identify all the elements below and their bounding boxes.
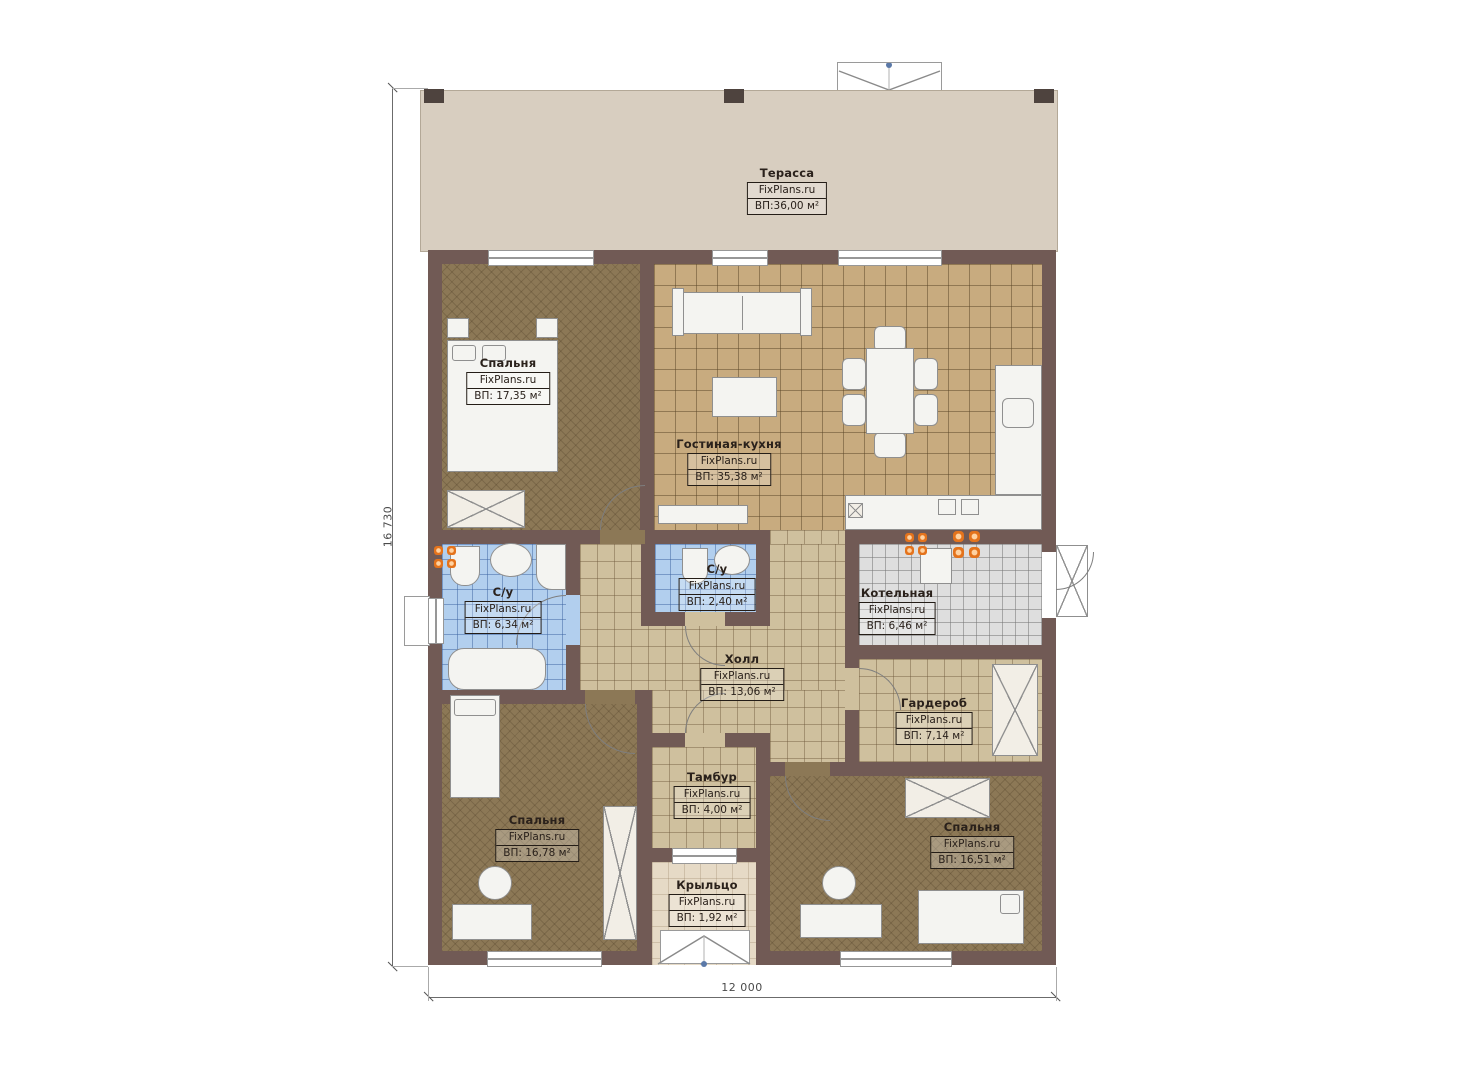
sink-cross-icon (848, 503, 863, 518)
room-label-tambur: Тамбур FixPlans.ru ВП: 4,00 м² (674, 770, 751, 819)
room-info-box: FixPlans.ru ВП: 6,34 м² (465, 601, 542, 634)
dining-chair (842, 394, 866, 426)
room-area: ВП: 13,06 м² (701, 685, 783, 700)
terrace-door-window (838, 250, 942, 266)
dining-table (866, 348, 914, 434)
nightstand (447, 318, 469, 338)
wardrobe-cabinet (992, 664, 1038, 756)
bedroom2-door-opening (585, 690, 635, 704)
bathroom1-window-sill (404, 596, 430, 646)
terrace-post-right (1034, 89, 1054, 103)
room-info-box: FixPlans.ru ВП: 4,00 м² (674, 786, 751, 819)
room-info-box: FixPlans.ru ВП: 1,92 м² (669, 894, 746, 927)
sofa-armrest (800, 288, 812, 336)
cooktop-icon (938, 499, 956, 515)
room-watermark: FixPlans.ru (897, 713, 972, 729)
room-info-box: FixPlans.ru ВП:36,00 м² (747, 182, 827, 215)
bedroom3-door-opening (785, 762, 830, 776)
terrace-area (420, 90, 1058, 252)
room-name: Гардероб (896, 696, 973, 710)
burner-dot (905, 546, 914, 555)
room-label-bathroom2: С/у FixPlans.ru ВП: 2,40 м² (679, 562, 756, 611)
room-label-boiler: Котельная FixPlans.ru ВП: 6,46 м² (859, 586, 936, 635)
burner-dot (918, 546, 927, 555)
terrace-post-left (424, 89, 444, 103)
room-watermark: FixPlans.ru (701, 669, 783, 685)
height-dimension-label: 16 730 (382, 494, 395, 560)
bathroom1-window (428, 598, 444, 644)
room-area: ВП: 1,92 м² (670, 911, 745, 926)
room-label-porch: Крыльцо FixPlans.ru ВП: 1,92 м² (669, 878, 746, 927)
room-info-box: FixPlans.ru ВП: 16,51 м² (930, 836, 1014, 869)
tv-stand (658, 505, 748, 524)
room-watermark: FixPlans.ru (860, 603, 935, 619)
room-area: ВП: 2,40 м² (680, 595, 755, 610)
exterior-door-swing (1056, 552, 1094, 590)
porch-steps (652, 928, 756, 968)
room-name: Спальня (466, 356, 550, 370)
width-dimension-line (428, 997, 1056, 998)
dining-chair (914, 358, 938, 390)
bathroom2-door-opening (685, 612, 725, 626)
dining-chair (842, 358, 866, 390)
tambur-door-opening (685, 733, 725, 747)
room-watermark: FixPlans.ru (496, 830, 578, 846)
bedroom1-wardrobe-cabinet (447, 490, 525, 528)
room-watermark: FixPlans.ru (748, 183, 826, 199)
room-label-bedroom3: Спальня FixPlans.ru ВП: 16,51 м² (930, 820, 1014, 869)
pillow (1000, 894, 1020, 914)
room-area: ВП: 17,35 м² (467, 389, 549, 404)
kitchen-sink (1002, 398, 1034, 428)
floor-plan-canvas: Терасса FixPlans.ru ВП:36,00 м² Спальня … (0, 0, 1474, 1080)
radiator-dot (434, 546, 443, 555)
bedroom3-window (840, 951, 952, 967)
extension-line-left (428, 967, 429, 1001)
chair (822, 866, 856, 900)
room-name: С/у (679, 562, 756, 576)
room-area: ВП:36,00 м² (748, 199, 826, 214)
bathroom1-door-opening (566, 595, 580, 645)
room-area: ВП: 7,14 м² (897, 729, 972, 744)
burner-dot (953, 531, 964, 542)
burner-dot (969, 531, 980, 542)
boiler-exterior-door-opening (1042, 552, 1056, 618)
radiator-dot (447, 559, 456, 568)
oven-icon (961, 499, 979, 515)
room-info-box: FixPlans.ru ВП: 35,38 м² (687, 453, 771, 486)
entry-door (672, 848, 737, 864)
room-watermark: FixPlans.ru (467, 373, 549, 389)
wardrobe-door-opening (845, 668, 859, 710)
bedroom3-wardrobe-cabinet (905, 778, 990, 818)
radiator-dot (434, 559, 443, 568)
room-name: С/у (465, 585, 542, 599)
hall-living-opening (770, 530, 845, 544)
room-watermark: FixPlans.ru (931, 837, 1013, 853)
chair (478, 866, 512, 900)
room-area: ВП: 16,78 м² (496, 846, 578, 861)
extension-line-bottom (392, 966, 428, 967)
room-label-living-kitchen: Гостиная-кухня FixPlans.ru ВП: 35,38 м² (676, 437, 781, 486)
dining-chair (874, 432, 906, 458)
burner-dot (953, 547, 964, 558)
terrace-post-middle (724, 89, 744, 103)
width-dimension-label: 12 000 (709, 981, 775, 994)
porch-steps-icon (652, 928, 756, 968)
room-watermark: FixPlans.ru (466, 602, 541, 618)
bedroom1-window (488, 250, 594, 266)
radiator-dot (447, 546, 456, 555)
burner-dot (905, 533, 914, 542)
room-name: Спальня (930, 820, 1014, 834)
room-info-box: FixPlans.ru ВП: 16,78 м² (495, 829, 579, 862)
extension-line-right (1056, 967, 1057, 1001)
room-area: ВП: 16,51 м² (931, 853, 1013, 868)
room-info-box: FixPlans.ru ВП: 2,40 м² (679, 578, 756, 611)
room-name: Котельная (859, 586, 936, 600)
stove-burners-right (953, 531, 980, 558)
room-area: ВП: 6,46 м² (860, 619, 935, 634)
room-info-box: FixPlans.ru ВП: 13,06 м² (700, 668, 784, 701)
room-watermark: FixPlans.ru (680, 579, 755, 595)
room-watermark: FixPlans.ru (688, 454, 770, 470)
kitchen-counter-right (995, 365, 1042, 495)
room-area: ВП: 4,00 м² (675, 803, 750, 818)
dining-chair (914, 394, 938, 426)
room-label-bedroom1: Спальня FixPlans.ru ВП: 17,35 м² (466, 356, 550, 405)
room-info-box: FixPlans.ru ВП: 6,46 м² (859, 602, 936, 635)
towel-radiator-dots (434, 546, 456, 568)
bathtub (448, 648, 546, 690)
bedroom2-wardrobe-cabinet (603, 806, 637, 940)
room-area: ВП: 35,38 м² (688, 470, 770, 485)
room-name: Терасса (747, 166, 827, 180)
room-info-box: FixPlans.ru ВП: 17,35 м² (466, 372, 550, 405)
living-window (712, 250, 768, 266)
room-name: Спальня (495, 813, 579, 827)
stove-burners-left (905, 533, 927, 555)
bathroom2-right-wall (756, 544, 770, 612)
pillow (454, 699, 496, 716)
nightstand (536, 318, 558, 338)
bedroom2-window (487, 951, 602, 967)
room-name: Холл (700, 652, 784, 666)
corner-shower (536, 544, 566, 590)
room-area: ВП: 6,34 м² (466, 618, 541, 633)
room-name: Гостиная-кухня (676, 437, 781, 451)
room-label-bathroom1: С/у FixPlans.ru ВП: 6,34 м² (465, 585, 542, 634)
burner-dot (969, 547, 980, 558)
room-watermark: FixPlans.ru (675, 787, 750, 803)
room-info-box: FixPlans.ru ВП: 7,14 м² (896, 712, 973, 745)
washbasin (490, 543, 532, 577)
room-name: Крыльцо (669, 878, 746, 892)
room-label-bedroom2: Спальня FixPlans.ru ВП: 16,78 м² (495, 813, 579, 862)
extension-line-top (392, 88, 428, 89)
desk (452, 904, 532, 940)
desk (800, 904, 882, 938)
room-name: Тамбур (674, 770, 751, 784)
room-label-terrace: Терасса FixPlans.ru ВП:36,00 м² (747, 166, 827, 215)
coffee-table (712, 377, 777, 417)
room-label-wardrobe: Гардероб FixPlans.ru ВП: 7,14 м² (896, 696, 973, 745)
burner-dot (918, 533, 927, 542)
room-label-hall: Холл FixPlans.ru ВП: 13,06 м² (700, 652, 784, 701)
sofa-cushion-line (742, 296, 743, 330)
bedroom1-door-opening (600, 530, 645, 544)
room-watermark: FixPlans.ru (670, 895, 745, 911)
